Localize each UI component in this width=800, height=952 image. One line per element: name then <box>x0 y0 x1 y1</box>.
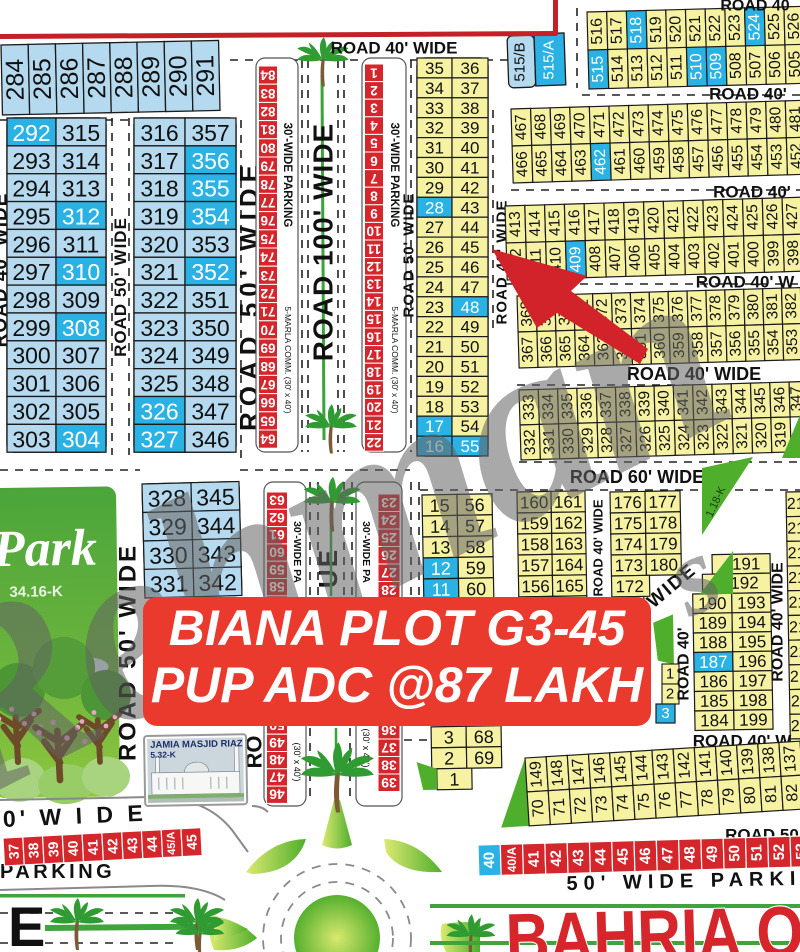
svg-text:165: 165 <box>555 576 584 595</box>
svg-text:308: 308 <box>62 315 100 341</box>
svg-text:511: 511 <box>668 54 686 80</box>
svg-text:347: 347 <box>788 386 800 412</box>
svg-text:41: 41 <box>84 839 101 856</box>
svg-text:ROAD 40': ROAD 40' <box>676 627 693 700</box>
svg-text:30: 30 <box>425 158 444 177</box>
svg-text:52: 52 <box>771 844 788 861</box>
svg-text:505: 505 <box>786 50 800 77</box>
svg-text:471: 471 <box>591 112 609 138</box>
svg-text:76: 76 <box>657 791 675 810</box>
svg-text:420: 420 <box>645 207 663 234</box>
svg-text:ROAD 50' WIDE: ROAD 50' WIDE <box>111 217 130 357</box>
svg-text:32: 32 <box>425 119 444 138</box>
svg-text:8: 8 <box>370 189 378 204</box>
svg-text:194: 194 <box>737 613 766 632</box>
svg-text:47: 47 <box>269 769 285 785</box>
svg-text:313: 313 <box>62 176 100 202</box>
svg-text:80: 80 <box>260 140 275 155</box>
svg-text:217: 217 <box>788 545 800 562</box>
svg-text:218: 218 <box>787 520 800 537</box>
svg-text:ROAD 40' WIDE: ROAD 40' WIDE <box>770 562 787 682</box>
svg-text:41: 41 <box>525 850 542 867</box>
svg-text:77: 77 <box>260 195 275 210</box>
svg-text:77: 77 <box>678 790 696 809</box>
svg-text:3: 3 <box>370 101 378 116</box>
svg-text:322: 322 <box>140 287 178 313</box>
svg-text:517: 517 <box>608 17 626 44</box>
svg-text:44: 44 <box>592 848 609 866</box>
svg-text:421: 421 <box>665 206 683 232</box>
svg-text:139: 139 <box>739 747 758 775</box>
svg-text:31: 31 <box>425 139 444 158</box>
svg-text:42: 42 <box>461 178 480 197</box>
svg-text:314: 314 <box>62 148 101 174</box>
svg-text:457: 457 <box>690 146 708 172</box>
svg-text:416: 416 <box>566 209 584 235</box>
svg-text:459: 459 <box>651 147 669 173</box>
svg-text:311: 311 <box>63 231 100 257</box>
svg-text:304: 304 <box>62 426 101 452</box>
svg-text:74: 74 <box>260 250 276 265</box>
svg-text:526: 526 <box>785 12 800 39</box>
svg-text:216: 216 <box>788 570 800 587</box>
svg-text:219: 219 <box>787 496 800 513</box>
svg-text:422: 422 <box>685 206 703 232</box>
svg-text:184: 184 <box>700 711 729 730</box>
svg-text:453: 453 <box>768 143 786 169</box>
svg-text:348: 348 <box>191 371 229 397</box>
svg-text:5: 5 <box>370 136 378 151</box>
svg-text:198: 198 <box>739 691 768 710</box>
svg-text:40: 40 <box>65 840 82 857</box>
svg-text:40: 40 <box>481 852 498 869</box>
svg-text:299: 299 <box>12 315 50 341</box>
svg-text:475: 475 <box>669 109 687 135</box>
svg-text:509: 509 <box>708 52 726 79</box>
svg-text:469: 469 <box>552 113 570 139</box>
svg-text:519: 519 <box>648 16 666 43</box>
svg-text:72: 72 <box>572 796 590 815</box>
svg-text:381: 381 <box>764 293 782 319</box>
svg-text:1: 1 <box>666 666 674 683</box>
svg-text:185: 185 <box>700 691 729 710</box>
svg-text:E: E <box>8 895 45 952</box>
svg-text:213: 213 <box>789 644 800 661</box>
svg-text:291: 291 <box>191 55 220 97</box>
svg-text:146: 146 <box>591 756 610 784</box>
svg-text:349: 349 <box>191 343 229 369</box>
svg-text:415: 415 <box>546 210 564 236</box>
svg-text:316: 316 <box>140 120 178 146</box>
svg-text:28: 28 <box>425 198 444 217</box>
svg-text:473: 473 <box>630 111 648 137</box>
svg-text:49: 49 <box>704 845 721 862</box>
svg-text:461: 461 <box>612 148 630 174</box>
svg-text:315: 315 <box>62 120 100 146</box>
svg-text:38: 38 <box>381 757 397 773</box>
svg-text:82: 82 <box>784 783 800 802</box>
svg-text:293: 293 <box>12 148 50 174</box>
svg-text:325: 325 <box>140 371 178 397</box>
svg-text:355: 355 <box>746 330 764 356</box>
svg-text:377: 377 <box>688 295 706 321</box>
svg-text:357: 357 <box>708 331 726 357</box>
svg-text:75: 75 <box>260 231 276 246</box>
svg-text:46: 46 <box>461 258 480 277</box>
svg-text:324: 324 <box>140 343 179 369</box>
svg-text:7: 7 <box>370 171 378 186</box>
svg-text:193: 193 <box>737 593 766 612</box>
svg-text:48: 48 <box>269 752 285 768</box>
svg-text:43: 43 <box>570 849 587 866</box>
svg-text:39: 39 <box>381 775 397 791</box>
svg-text:78: 78 <box>260 177 276 192</box>
svg-text:172: 172 <box>615 577 644 596</box>
svg-text:2: 2 <box>666 686 674 703</box>
svg-text:403: 403 <box>686 243 704 269</box>
svg-text:29: 29 <box>425 178 444 197</box>
svg-text:212: 212 <box>790 668 800 685</box>
svg-text:42: 42 <box>548 850 565 867</box>
svg-text:306: 306 <box>62 371 100 397</box>
svg-text:46: 46 <box>637 847 654 864</box>
svg-text:303: 303 <box>12 426 50 452</box>
svg-text:452: 452 <box>788 143 800 169</box>
svg-text:36: 36 <box>461 59 480 78</box>
svg-text:2: 2 <box>370 83 378 98</box>
svg-text:463: 463 <box>572 149 590 175</box>
svg-text:355: 355 <box>191 176 229 202</box>
svg-text:67: 67 <box>260 377 275 392</box>
svg-text:326: 326 <box>140 398 178 424</box>
svg-text:38: 38 <box>461 99 480 118</box>
svg-text:515: 515 <box>589 56 607 83</box>
svg-text:516: 516 <box>588 18 606 45</box>
svg-text:296: 296 <box>12 231 50 257</box>
svg-text:310: 310 <box>62 259 100 285</box>
svg-text:477: 477 <box>708 108 726 134</box>
svg-text:ROAD 40' WIDE: ROAD 40' WIDE <box>331 39 458 58</box>
svg-text:470: 470 <box>571 112 589 139</box>
svg-text:465: 465 <box>533 150 551 176</box>
svg-text:27: 27 <box>425 218 444 237</box>
svg-text:309: 309 <box>62 287 100 313</box>
svg-text:70: 70 <box>530 799 548 818</box>
svg-text:513: 513 <box>629 55 647 82</box>
svg-text:460: 460 <box>631 147 649 174</box>
svg-text:302: 302 <box>12 398 50 424</box>
svg-text:173: 173 <box>614 556 643 575</box>
svg-text:144: 144 <box>633 754 652 782</box>
svg-text:404: 404 <box>666 243 684 270</box>
svg-text:137: 137 <box>781 745 800 773</box>
svg-text:317: 317 <box>140 148 178 174</box>
svg-text:37: 37 <box>461 79 480 98</box>
svg-text:78: 78 <box>699 788 717 807</box>
svg-text:30'-WIDE PARKING: 30'-WIDE PARKING <box>388 123 400 228</box>
svg-text:350: 350 <box>191 315 229 341</box>
svg-text:81: 81 <box>260 122 276 137</box>
svg-text:79: 79 <box>720 787 738 806</box>
svg-text:81: 81 <box>762 785 780 804</box>
svg-text:43: 43 <box>461 198 480 217</box>
svg-text:187: 187 <box>699 652 728 671</box>
svg-text:33: 33 <box>425 99 444 118</box>
svg-text:522: 522 <box>707 14 725 41</box>
svg-text:525: 525 <box>766 13 784 40</box>
svg-text:69: 69 <box>260 341 275 356</box>
svg-text:45: 45 <box>615 848 632 865</box>
svg-text:424: 424 <box>724 204 742 231</box>
svg-text:467: 467 <box>512 114 530 140</box>
svg-text:45: 45 <box>461 238 480 257</box>
svg-text:73: 73 <box>593 795 611 814</box>
svg-text:456: 456 <box>709 145 727 171</box>
svg-text:286: 286 <box>55 57 84 99</box>
svg-text:514: 514 <box>609 55 627 82</box>
svg-text:41: 41 <box>461 158 480 177</box>
svg-text:288: 288 <box>110 56 139 98</box>
svg-text:38: 38 <box>25 842 42 859</box>
svg-text:479: 479 <box>748 107 766 133</box>
svg-text:191: 191 <box>732 554 761 573</box>
svg-text:298: 298 <box>12 287 50 313</box>
svg-text:80: 80 <box>741 786 759 805</box>
svg-text:186: 186 <box>699 672 728 691</box>
svg-text:292: 292 <box>12 120 50 146</box>
svg-text:10: 10 <box>366 224 381 239</box>
svg-text:142: 142 <box>675 751 694 779</box>
svg-text:82: 82 <box>260 104 275 119</box>
svg-text:BIANA PLOT G3-45: BIANA PLOT G3-45 <box>169 600 627 656</box>
svg-text:44: 44 <box>144 836 161 853</box>
svg-text:520: 520 <box>667 16 685 43</box>
svg-text:211: 211 <box>791 693 800 710</box>
svg-text:357: 357 <box>191 120 229 146</box>
svg-text:143: 143 <box>654 753 673 781</box>
svg-text:3: 3 <box>661 705 669 722</box>
svg-text:521: 521 <box>687 15 705 42</box>
svg-text:380: 380 <box>745 293 763 320</box>
svg-text:46: 46 <box>269 787 285 803</box>
svg-text:199: 199 <box>739 710 768 729</box>
svg-text:11: 11 <box>366 241 381 256</box>
svg-text:402: 402 <box>706 242 724 268</box>
svg-text:297: 297 <box>12 259 50 285</box>
svg-text:289: 289 <box>137 56 166 98</box>
svg-text:6: 6 <box>370 153 378 168</box>
svg-text:319: 319 <box>140 203 178 229</box>
svg-text:307: 307 <box>62 343 100 369</box>
svg-text:508: 508 <box>727 52 745 79</box>
svg-text:321: 321 <box>140 259 178 285</box>
svg-text:49: 49 <box>269 735 285 751</box>
svg-text:141: 141 <box>697 750 716 778</box>
svg-text:352: 352 <box>191 259 229 285</box>
svg-text:399: 399 <box>765 240 783 266</box>
svg-text:518: 518 <box>628 17 646 44</box>
svg-text:40: 40 <box>461 139 480 158</box>
svg-text:25: 25 <box>425 258 444 277</box>
svg-text:73: 73 <box>260 268 276 283</box>
svg-text:192: 192 <box>730 573 759 592</box>
svg-text:423: 423 <box>704 205 722 231</box>
svg-text:39: 39 <box>45 841 62 858</box>
svg-text:15: 15 <box>366 312 382 327</box>
svg-text:414: 414 <box>526 210 544 237</box>
svg-text:40/A: 40/A <box>504 846 519 872</box>
svg-text:398: 398 <box>785 240 800 266</box>
svg-text:ROAD 40' WIDE: ROAD 40' WIDE <box>0 193 12 348</box>
svg-text:53: 53 <box>793 843 800 860</box>
svg-text:300: 300 <box>12 343 50 369</box>
svg-text:138: 138 <box>760 746 779 774</box>
svg-text:147: 147 <box>570 758 589 786</box>
svg-text:345: 345 <box>752 387 770 413</box>
svg-text:3: 3 <box>444 727 454 747</box>
svg-text:318: 318 <box>140 176 178 202</box>
svg-text:145: 145 <box>612 755 631 783</box>
svg-text:458: 458 <box>670 146 688 172</box>
svg-text:30'-WIDE PARKING: 30'-WIDE PARKING <box>281 123 293 228</box>
svg-text:197: 197 <box>738 671 767 690</box>
svg-text:195: 195 <box>738 632 767 651</box>
svg-text:24: 24 <box>425 278 444 297</box>
svg-text:382: 382 <box>783 293 800 319</box>
svg-text:1: 1 <box>370 65 378 80</box>
svg-text:51: 51 <box>748 844 765 861</box>
svg-text:510: 510 <box>688 53 706 80</box>
svg-text:12: 12 <box>366 259 381 274</box>
svg-text:140: 140 <box>718 749 737 777</box>
svg-text:400: 400 <box>745 241 763 268</box>
svg-text:480: 480 <box>767 106 785 133</box>
svg-text:BAHRIA O: BAHRIA O <box>505 892 800 952</box>
svg-text:68: 68 <box>474 727 494 747</box>
svg-text:68: 68 <box>260 359 276 374</box>
svg-text:515/A: 515/A <box>541 40 558 79</box>
svg-text:69: 69 <box>474 748 494 768</box>
svg-text:72: 72 <box>260 286 275 301</box>
svg-text:506: 506 <box>767 51 785 78</box>
svg-text:43: 43 <box>124 837 141 854</box>
svg-text:2: 2 <box>444 748 454 768</box>
svg-text:455: 455 <box>729 145 747 171</box>
svg-text:83: 83 <box>260 86 276 101</box>
svg-text:48: 48 <box>681 846 698 863</box>
svg-text:472: 472 <box>610 111 628 137</box>
svg-text:462: 462 <box>592 149 610 175</box>
svg-text:37: 37 <box>381 740 397 756</box>
svg-text:196: 196 <box>738 652 767 671</box>
svg-text:ROAD 100' WIDE: ROAD 100' WIDE <box>308 123 339 361</box>
svg-text:301: 301 <box>12 371 50 397</box>
svg-text:353: 353 <box>191 231 229 257</box>
svg-text:39: 39 <box>461 119 480 138</box>
svg-text:287: 287 <box>82 57 111 99</box>
svg-text:284: 284 <box>1 58 30 100</box>
svg-text:294: 294 <box>12 176 51 202</box>
svg-text:290: 290 <box>164 55 193 97</box>
svg-text:34: 34 <box>425 79 444 98</box>
svg-text:214: 214 <box>789 619 800 636</box>
svg-text:454: 454 <box>749 144 767 171</box>
svg-text:312: 312 <box>62 203 100 229</box>
svg-text:74: 74 <box>614 794 632 813</box>
svg-text:71: 71 <box>551 797 569 816</box>
svg-text:474: 474 <box>650 110 668 137</box>
svg-text:13: 13 <box>366 277 382 292</box>
svg-text:70: 70 <box>260 322 275 337</box>
svg-text:464: 464 <box>553 149 571 176</box>
svg-text:356: 356 <box>191 148 229 174</box>
svg-text:50: 50 <box>726 845 743 862</box>
svg-text:26: 26 <box>425 238 444 257</box>
svg-text:45/A: 45/A <box>165 831 178 855</box>
svg-text:346: 346 <box>771 387 789 413</box>
svg-text:319: 319 <box>772 422 790 448</box>
svg-text:356: 356 <box>727 330 745 356</box>
svg-text:478: 478 <box>728 108 746 134</box>
svg-text:515/B: 515/B <box>512 42 529 81</box>
svg-text:ROAD 50' WIDE: ROAD 50' WIDE <box>401 193 418 318</box>
svg-text:215: 215 <box>788 594 800 611</box>
svg-text:481: 481 <box>787 106 800 132</box>
svg-text:47: 47 <box>659 847 676 864</box>
svg-text:148: 148 <box>548 759 567 787</box>
svg-text:84: 84 <box>260 68 276 83</box>
svg-text:354: 354 <box>765 329 783 356</box>
svg-text:476: 476 <box>689 109 707 135</box>
svg-text:323: 323 <box>140 315 178 341</box>
svg-text:76: 76 <box>260 213 276 228</box>
svg-text:75: 75 <box>635 792 653 811</box>
svg-text:1: 1 <box>449 769 459 789</box>
svg-text:512: 512 <box>649 54 667 81</box>
svg-text:ROAD 40: ROAD 40 <box>720 0 789 15</box>
svg-text:42: 42 <box>104 838 121 855</box>
svg-text:9: 9 <box>370 206 378 221</box>
svg-text:427: 427 <box>784 203 800 229</box>
svg-text:320: 320 <box>140 231 178 257</box>
svg-text:45: 45 <box>183 834 200 851</box>
svg-text:295: 295 <box>12 203 50 229</box>
svg-text:4: 4 <box>370 118 378 133</box>
svg-text:35: 35 <box>425 59 444 78</box>
svg-text:413: 413 <box>507 211 525 237</box>
svg-text:507: 507 <box>747 51 765 78</box>
svg-text:285: 285 <box>28 58 57 100</box>
svg-text:149: 149 <box>527 760 546 788</box>
svg-text:425: 425 <box>744 204 762 230</box>
svg-text:210: 210 <box>791 718 800 735</box>
svg-text:71: 71 <box>260 304 276 319</box>
svg-text:44: 44 <box>461 218 480 237</box>
svg-text:466: 466 <box>514 151 532 177</box>
svg-text:354: 354 <box>191 203 230 229</box>
svg-text:79: 79 <box>260 159 275 174</box>
svg-text:524: 524 <box>746 13 764 40</box>
svg-text:468: 468 <box>532 113 550 139</box>
svg-text:401: 401 <box>725 242 743 268</box>
svg-text:378: 378 <box>707 295 725 321</box>
svg-text:379: 379 <box>726 294 744 320</box>
svg-text:351: 351 <box>191 287 229 313</box>
svg-text:523: 523 <box>726 14 744 41</box>
svg-text:PUP ADC @87 LAKH: PUP ADC @87 LAKH <box>151 657 644 713</box>
svg-text:426: 426 <box>764 203 782 229</box>
svg-text:305: 305 <box>62 398 100 424</box>
